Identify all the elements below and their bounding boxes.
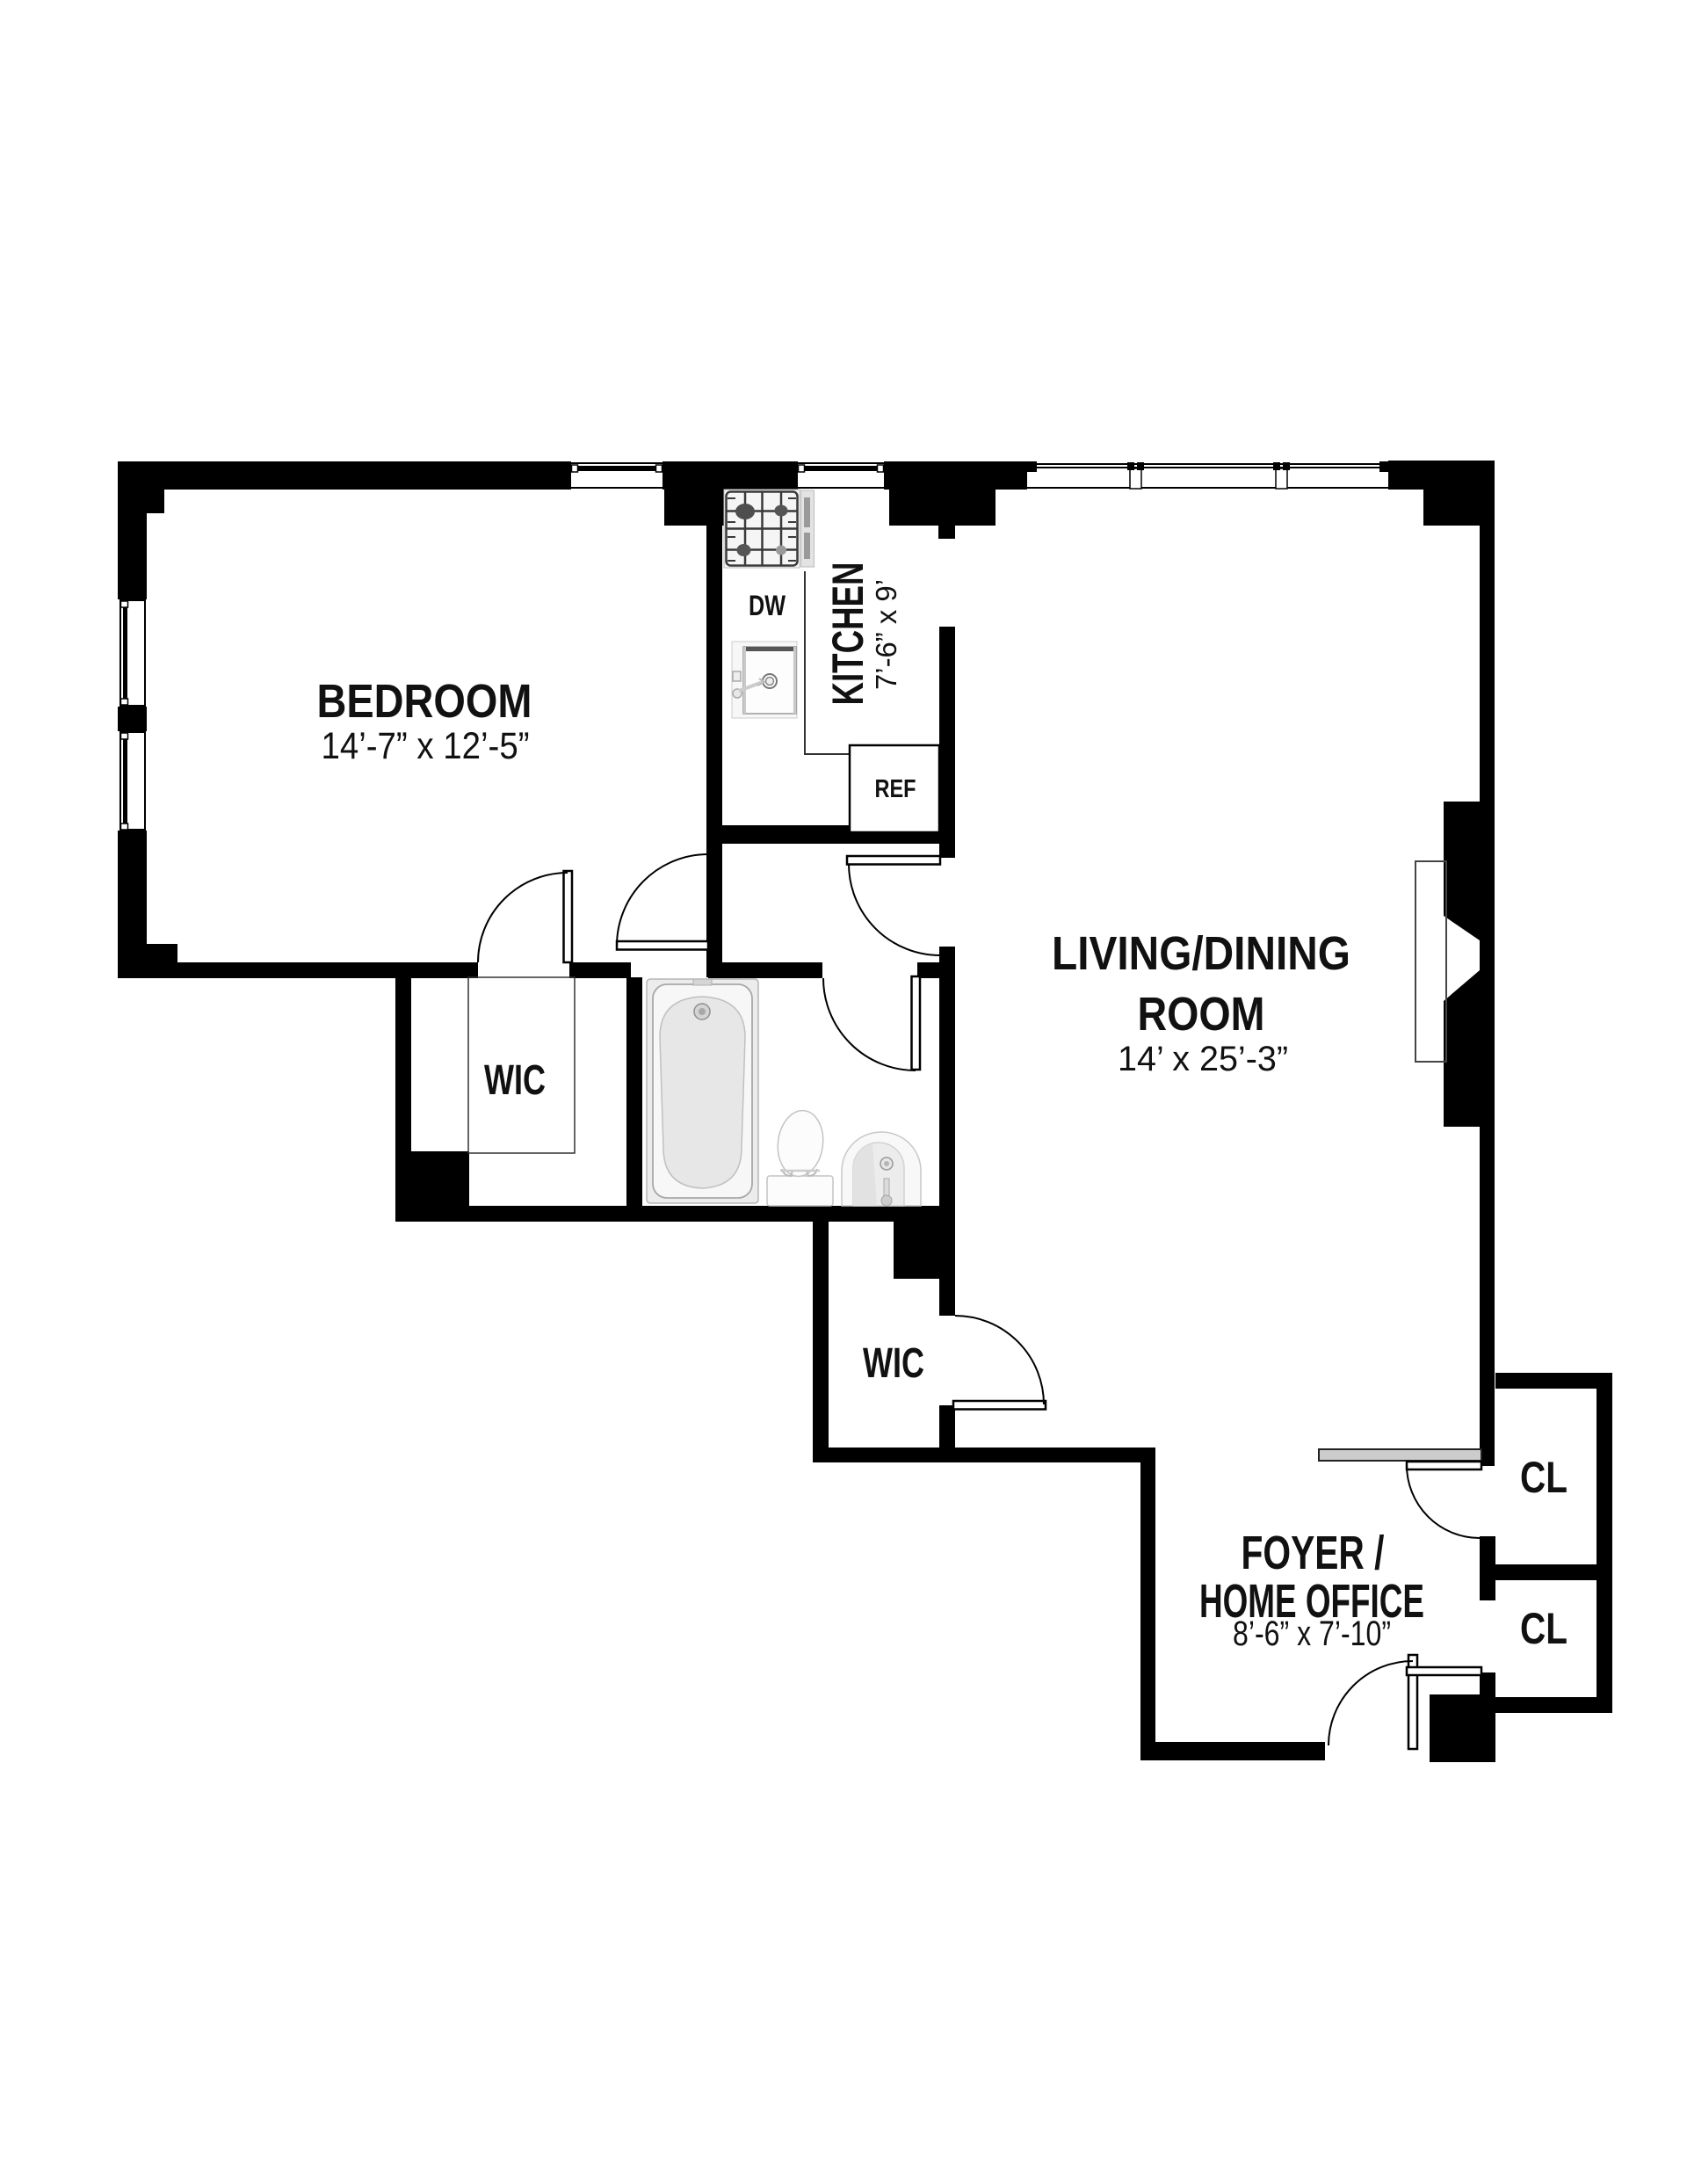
svg-text:8’-6” x 7’-10”: 8’-6” x 7’-10” (1233, 1614, 1391, 1653)
svg-text:WIC: WIC (863, 1340, 924, 1387)
svg-text:FOYER /: FOYER / (1242, 1527, 1385, 1579)
svg-text:WIC: WIC (484, 1057, 546, 1104)
svg-text:ROOM: ROOM (1138, 988, 1265, 1041)
svg-text:14’ x 25’-3”: 14’ x 25’-3” (1118, 1040, 1288, 1078)
svg-text:BEDROOM: BEDROOM (317, 675, 532, 728)
svg-text:7’-6” x 9’: 7’-6” x 9’ (870, 579, 902, 690)
svg-text:CL: CL (1520, 1604, 1568, 1653)
svg-text:LIVING/DINING: LIVING/DINING (1052, 927, 1350, 980)
svg-text:14’-7” x 12’-5”: 14’-7” x 12’-5” (322, 725, 530, 767)
svg-text:KITCHEN: KITCHEN (823, 562, 872, 706)
svg-text:CL: CL (1520, 1453, 1568, 1502)
svg-text:DW: DW (749, 590, 786, 621)
svg-text:REF: REF (875, 775, 916, 803)
